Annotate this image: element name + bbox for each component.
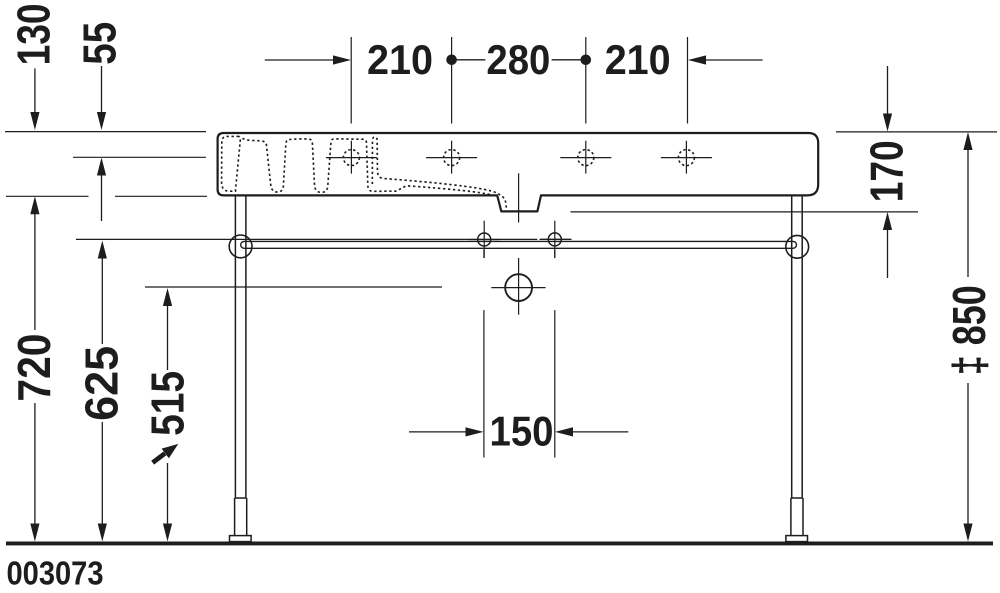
svg-text:280: 280 — [486, 36, 550, 83]
svg-text:515: 515 — [142, 371, 194, 436]
svg-text:210: 210 — [605, 36, 671, 83]
svg-text:130: 130 — [8, 3, 60, 65]
svg-text:720: 720 — [8, 334, 60, 402]
svg-text:‡ 850: ‡ 850 — [943, 285, 995, 375]
svg-text:170: 170 — [861, 140, 913, 202]
svg-text:625: 625 — [76, 346, 128, 421]
svg-text:150: 150 — [490, 407, 554, 454]
svg-text:55: 55 — [74, 22, 126, 65]
svg-text:210: 210 — [367, 36, 433, 83]
svg-text:003073: 003073 — [7, 554, 104, 591]
